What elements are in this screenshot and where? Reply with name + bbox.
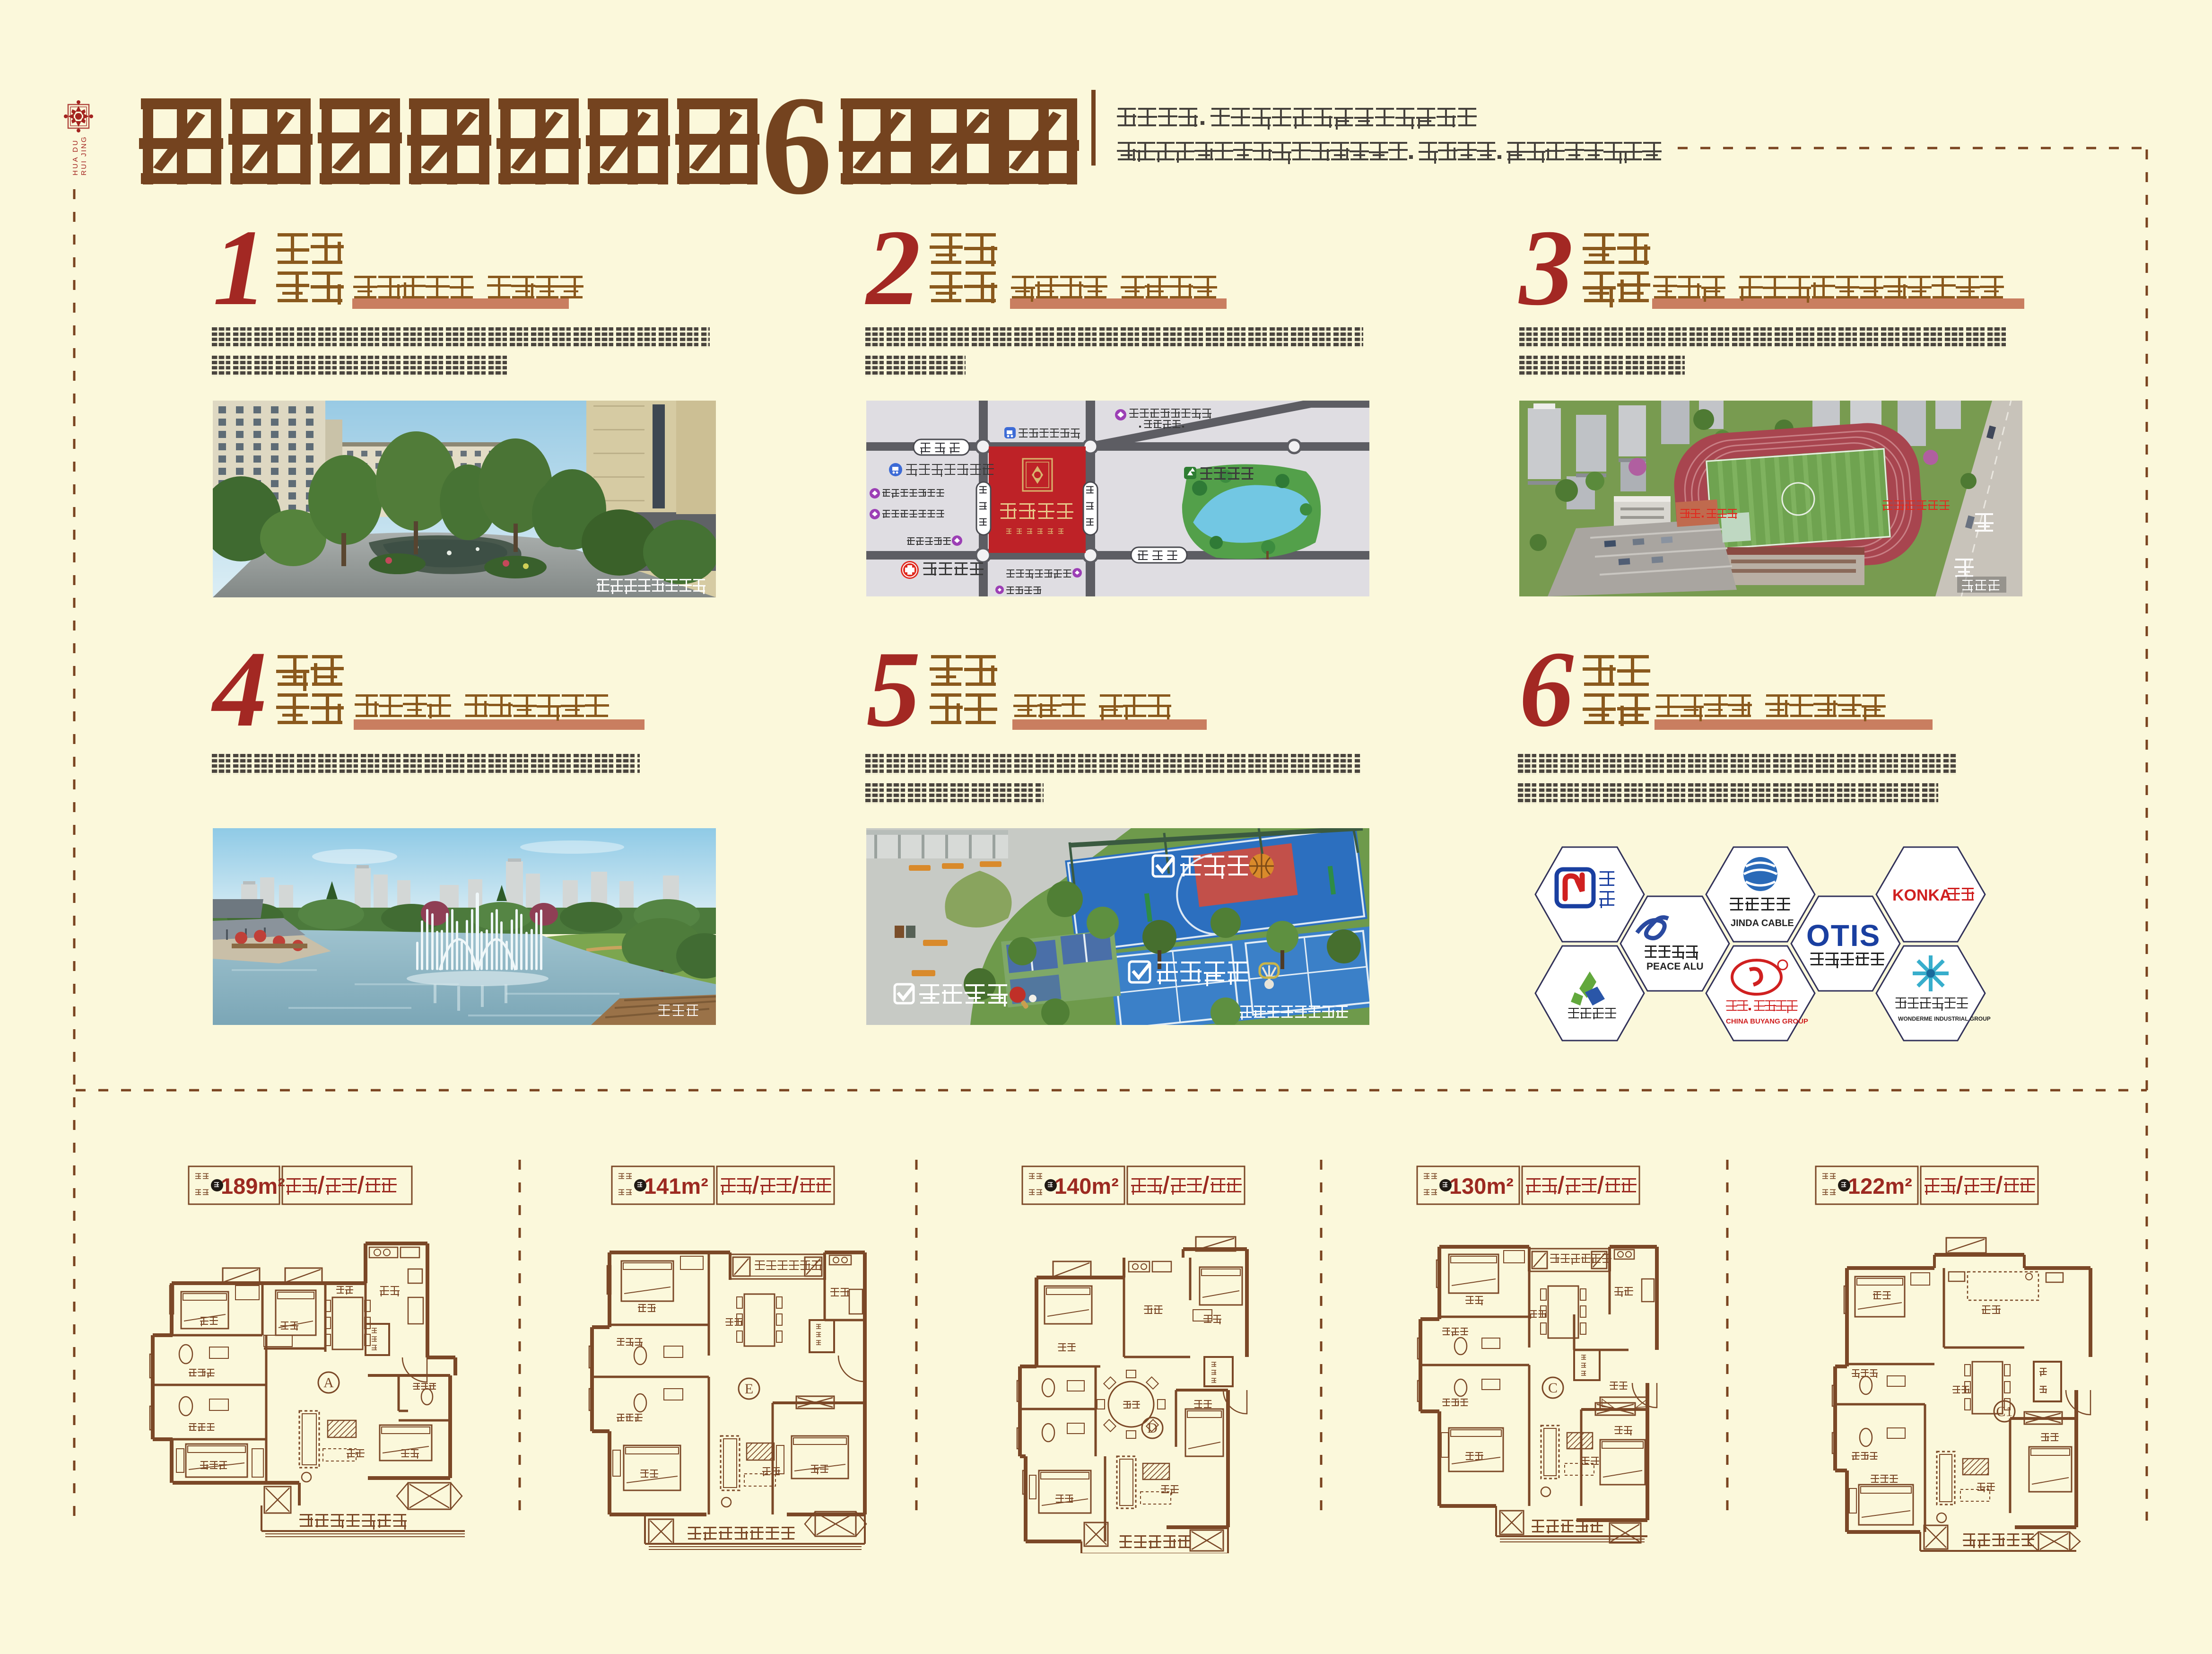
svg-text:A: A (323, 1375, 334, 1391)
svg-text:122m²: 122m² (1848, 1173, 1912, 1199)
svg-text:140m²: 140m² (1054, 1173, 1119, 1199)
svg-text:E: E (745, 1381, 753, 1397)
svg-text:189m²: 189m² (221, 1173, 285, 1199)
svg-text:PEACE ALU: PEACE ALU (1646, 961, 1704, 972)
svg-text:141m²: 141m² (644, 1173, 708, 1199)
svg-text:C: C (1548, 1380, 1558, 1396)
svg-text:130m²: 130m² (1449, 1173, 1514, 1199)
svg-text:D: D (1147, 1420, 1158, 1436)
svg-text:KONKA: KONKA (1892, 886, 1951, 904)
svg-text:OTIS: OTIS (1806, 919, 1881, 953)
svg-text:WONDERME INDUSTRIAL GROUP: WONDERME INDUSTRIAL GROUP (1898, 1015, 1991, 1022)
svg-text:CHINA BUYANG GROUP: CHINA BUYANG GROUP (1726, 1017, 1808, 1025)
svg-text:JINDA CABLE: JINDA CABLE (1731, 918, 1794, 928)
